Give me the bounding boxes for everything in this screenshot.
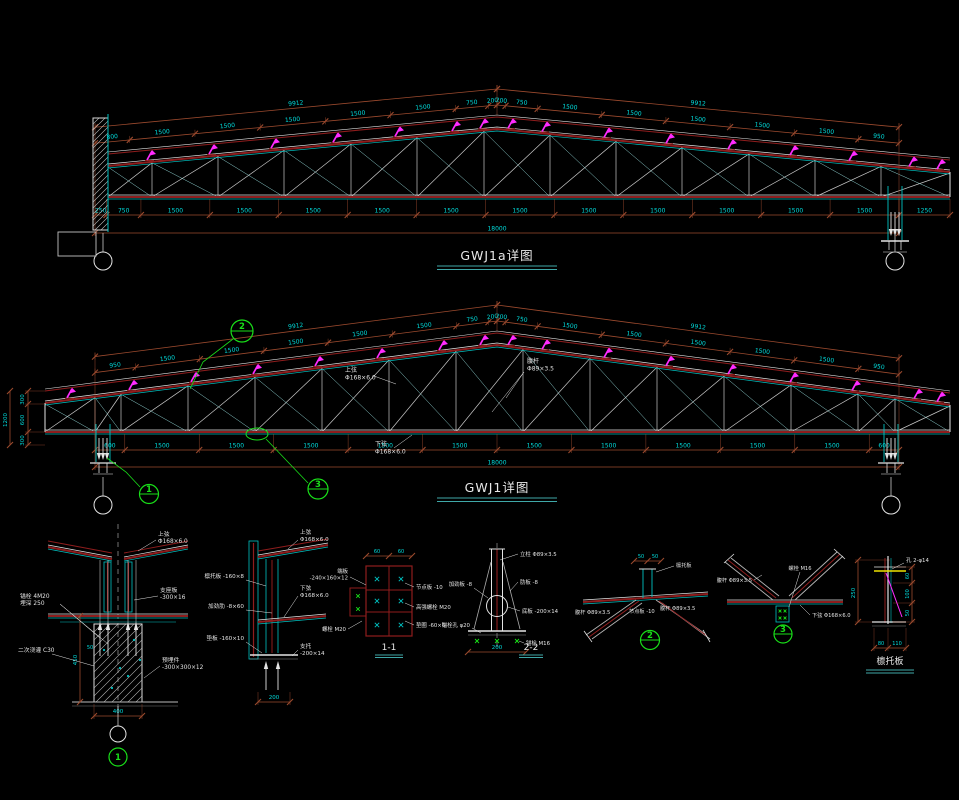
svg-text:Φ89×3.5: Φ89×3.5 bbox=[527, 366, 554, 373]
svg-text:250: 250 bbox=[95, 208, 107, 215]
svg-text:60: 60 bbox=[398, 549, 404, 555]
svg-text:立柱 Φ89×3.5: 立柱 Φ89×3.5 bbox=[520, 550, 557, 558]
svg-text:300: 300 bbox=[20, 394, 26, 405]
svg-text:-240×160×12: -240×160×12 bbox=[310, 576, 348, 582]
svg-text:3: 3 bbox=[315, 480, 321, 490]
svg-text:垫板 -160×10: 垫板 -160×10 bbox=[207, 634, 245, 642]
svg-text:肋板 -8: 肋板 -8 bbox=[520, 578, 538, 586]
svg-text:1500: 1500 bbox=[626, 109, 642, 117]
svg-text:1500: 1500 bbox=[443, 208, 458, 215]
svg-text:1500: 1500 bbox=[229, 443, 244, 450]
svg-text:200: 200 bbox=[269, 695, 280, 701]
svg-text:支座板: 支座板 bbox=[160, 586, 178, 594]
svg-text:腹杆 Φ89×3.5: 腹杆 Φ89×3.5 bbox=[575, 608, 610, 616]
svg-text:-300×16: -300×16 bbox=[160, 595, 186, 601]
svg-text:1500: 1500 bbox=[527, 443, 542, 450]
svg-text:1500: 1500 bbox=[168, 208, 183, 215]
svg-text:1500: 1500 bbox=[581, 208, 596, 215]
svg-text:100: 100 bbox=[905, 589, 911, 599]
svg-text:节点板 -10: 节点板 -10 bbox=[629, 607, 655, 615]
svg-text:加劲肋 -8×60: 加劲肋 -8×60 bbox=[208, 602, 244, 610]
svg-text:节点板 -10: 节点板 -10 bbox=[416, 583, 443, 591]
canvas-background bbox=[0, 0, 959, 800]
svg-text:1500: 1500 bbox=[857, 208, 872, 215]
svg-text:950: 950 bbox=[873, 133, 885, 141]
svg-text:下弦: 下弦 bbox=[300, 584, 312, 592]
truss-a-title: GWJ1a详图 bbox=[460, 248, 533, 263]
svg-text:50: 50 bbox=[905, 610, 911, 616]
svg-text:1250: 1250 bbox=[917, 208, 932, 215]
svg-text:1500: 1500 bbox=[154, 128, 170, 136]
svg-text:110: 110 bbox=[892, 641, 902, 647]
svg-text:2: 2 bbox=[647, 631, 653, 641]
svg-text:1500: 1500 bbox=[350, 110, 366, 118]
svg-text:1500: 1500 bbox=[285, 116, 301, 124]
svg-text:预埋件: 预埋件 bbox=[162, 656, 180, 664]
svg-text:檩托板: 檩托板 bbox=[676, 561, 692, 569]
svg-text:3: 3 bbox=[780, 625, 786, 635]
purlin-plate-title: 檩托板 bbox=[876, 655, 903, 667]
svg-text:50: 50 bbox=[638, 554, 644, 560]
section-1-1-title: 1-1 bbox=[382, 643, 397, 653]
section-2-2-title: 2-2 bbox=[524, 643, 539, 653]
svg-text:250: 250 bbox=[851, 587, 857, 598]
svg-text:端板: 端板 bbox=[337, 567, 348, 575]
svg-text:1500: 1500 bbox=[719, 208, 734, 215]
svg-text:1500: 1500 bbox=[219, 122, 235, 130]
svg-text:高强螺栓 M20: 高强螺栓 M20 bbox=[416, 603, 451, 611]
svg-text:18000: 18000 bbox=[487, 226, 506, 233]
svg-text:下弦: 下弦 bbox=[375, 440, 387, 448]
svg-text:1500: 1500 bbox=[415, 103, 431, 111]
svg-text:孔 2-φ14: 孔 2-φ14 bbox=[906, 556, 929, 564]
cad-canvas: 8001500150015001500150075020020075015001… bbox=[0, 0, 959, 800]
svg-text:1500: 1500 bbox=[154, 443, 169, 450]
svg-text:950: 950 bbox=[109, 361, 121, 369]
svg-text:1500: 1500 bbox=[306, 208, 321, 215]
svg-text:750: 750 bbox=[466, 99, 478, 107]
svg-text:腹杆 Φ89×3.5: 腹杆 Φ89×3.5 bbox=[660, 604, 695, 612]
svg-text:1500: 1500 bbox=[824, 443, 839, 450]
svg-text:上弦: 上弦 bbox=[300, 528, 312, 536]
svg-text:750: 750 bbox=[516, 316, 528, 324]
svg-text:9912: 9912 bbox=[288, 99, 304, 107]
truss-b-title: GWJ1详图 bbox=[465, 480, 530, 495]
svg-text:锚栓 4M20: 锚栓 4M20 bbox=[20, 592, 50, 600]
svg-text:60: 60 bbox=[905, 573, 911, 579]
svg-text:埋深 250: 埋深 250 bbox=[20, 599, 45, 607]
svg-text:Φ168×6.0: Φ168×6.0 bbox=[375, 449, 406, 456]
svg-text:750: 750 bbox=[516, 99, 528, 107]
svg-text:750: 750 bbox=[466, 315, 478, 323]
svg-text:1500: 1500 bbox=[650, 208, 665, 215]
svg-text:檩托板 -160×8: 檩托板 -160×8 bbox=[204, 572, 244, 580]
svg-text:腹杆 Φ89×3.5: 腹杆 Φ89×3.5 bbox=[717, 576, 752, 584]
svg-text:1500: 1500 bbox=[601, 443, 616, 450]
svg-text:下弦 Φ168×6.0: 下弦 Φ168×6.0 bbox=[812, 611, 851, 619]
svg-text:80: 80 bbox=[878, 641, 884, 647]
svg-text:-300×300×12: -300×300×12 bbox=[162, 665, 204, 671]
svg-text:-200×14: -200×14 bbox=[300, 651, 325, 657]
svg-text:支托: 支托 bbox=[300, 642, 312, 650]
svg-text:1500: 1500 bbox=[690, 115, 706, 123]
svg-text:锚栓孔 φ20: 锚栓孔 φ20 bbox=[442, 621, 471, 629]
svg-text:2: 2 bbox=[239, 322, 245, 332]
svg-text:300: 300 bbox=[20, 435, 26, 446]
svg-text:螺栓 M16: 螺栓 M16 bbox=[788, 564, 811, 572]
svg-text:1: 1 bbox=[146, 485, 152, 495]
svg-text:1500: 1500 bbox=[452, 443, 467, 450]
svg-text:1500: 1500 bbox=[512, 208, 527, 215]
svg-text:1500: 1500 bbox=[675, 443, 690, 450]
svg-text:450: 450 bbox=[73, 654, 79, 665]
svg-text:50: 50 bbox=[87, 645, 93, 651]
svg-text:950: 950 bbox=[873, 363, 885, 371]
svg-text:1500: 1500 bbox=[237, 208, 252, 215]
svg-text:60: 60 bbox=[374, 549, 380, 555]
svg-text:加劲板 -8: 加劲板 -8 bbox=[449, 580, 473, 588]
svg-text:1500: 1500 bbox=[750, 443, 765, 450]
svg-text:1500: 1500 bbox=[562, 103, 578, 111]
svg-text:Φ168×6.0: Φ168×6.0 bbox=[300, 593, 329, 599]
svg-text:1500: 1500 bbox=[819, 128, 835, 136]
svg-text:1500: 1500 bbox=[788, 208, 803, 215]
svg-text:1500: 1500 bbox=[375, 208, 390, 215]
svg-text:腹杆: 腹杆 bbox=[527, 357, 539, 365]
svg-text:Φ168×6.0: Φ168×6.0 bbox=[158, 539, 188, 545]
svg-text:1500: 1500 bbox=[303, 443, 318, 450]
svg-text:螺栓 M20: 螺栓 M20 bbox=[322, 625, 347, 633]
svg-text:1: 1 bbox=[115, 753, 121, 763]
svg-text:底板 -200×14: 底板 -200×14 bbox=[522, 607, 559, 615]
svg-text:Φ168×6.0: Φ168×6.0 bbox=[345, 375, 376, 382]
svg-text:200: 200 bbox=[492, 645, 503, 651]
svg-text:18000: 18000 bbox=[487, 460, 506, 467]
svg-text:上弦: 上弦 bbox=[158, 530, 170, 538]
svg-text:750: 750 bbox=[118, 208, 130, 215]
svg-text:50: 50 bbox=[652, 554, 658, 560]
svg-text:9912: 9912 bbox=[690, 99, 706, 107]
svg-text:1200: 1200 bbox=[3, 413, 9, 427]
svg-text:600: 600 bbox=[20, 414, 26, 425]
svg-text:上弦: 上弦 bbox=[345, 366, 357, 374]
svg-text:1500: 1500 bbox=[754, 121, 770, 129]
svg-text:Φ168×6.0: Φ168×6.0 bbox=[300, 537, 329, 543]
svg-text:二次浇灌 C30: 二次浇灌 C30 bbox=[18, 646, 55, 654]
